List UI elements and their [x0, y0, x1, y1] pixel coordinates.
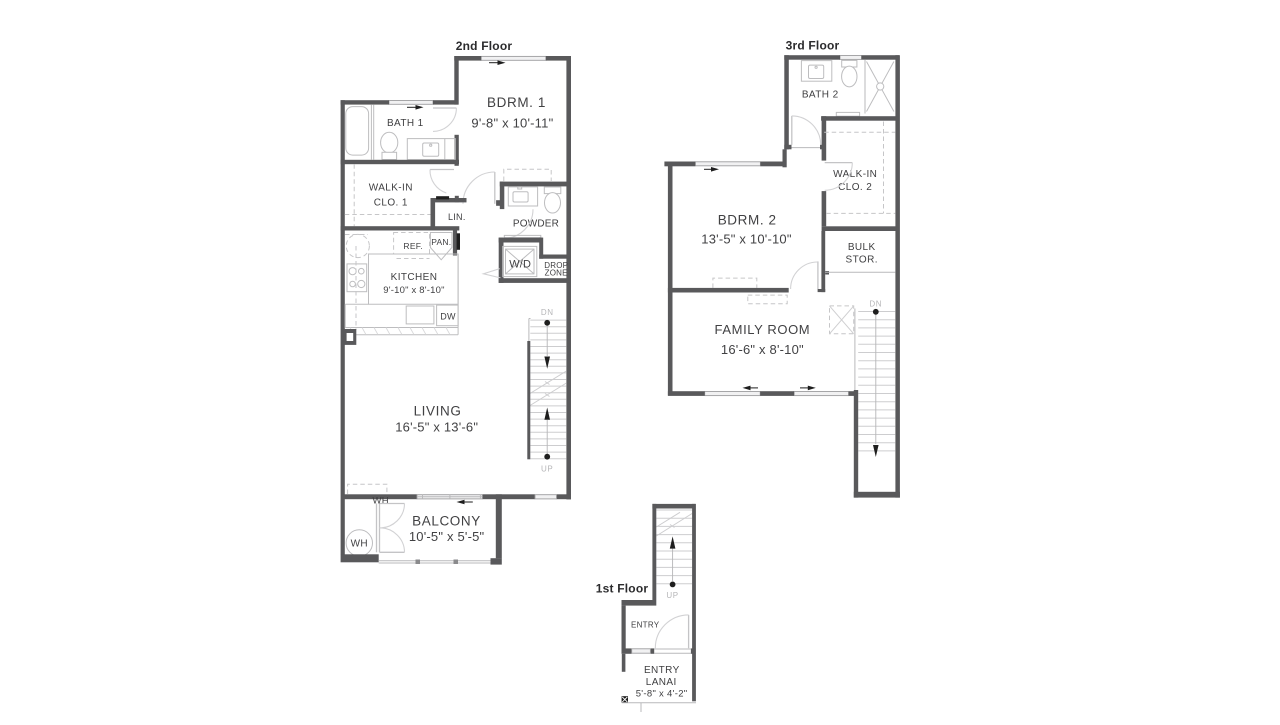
svg-text:DN: DN [869, 300, 882, 309]
svg-text:STOR.: STOR. [846, 255, 878, 266]
svg-text:5'-8" x 4'-2": 5'-8" x 4'-2" [636, 688, 688, 699]
svg-text:DW: DW [440, 312, 456, 322]
svg-text:10'-5" x 5'-5": 10'-5" x 5'-5" [409, 529, 485, 544]
svg-text:16'-5" x 13'-6": 16'-5" x 13'-6" [395, 420, 478, 435]
svg-text:PAN.: PAN. [431, 237, 451, 247]
svg-text:W/D: W/D [509, 259, 531, 271]
svg-text:13'-5" x 10'-10": 13'-5" x 10'-10" [701, 232, 792, 247]
svg-text:DN: DN [541, 308, 554, 317]
svg-text:WALK-IN: WALK-IN [833, 169, 877, 180]
svg-text:ENTRY: ENTRY [644, 665, 680, 676]
svg-text:1st Floor: 1st Floor [596, 582, 649, 596]
svg-text:FAMILY ROOM: FAMILY ROOM [715, 322, 811, 337]
svg-text:ZONE: ZONE [545, 268, 568, 277]
svg-text:LIN.: LIN. [448, 212, 466, 222]
svg-text:BALCONY: BALCONY [412, 514, 481, 529]
svg-text:REF.: REF. [403, 241, 423, 251]
svg-text:BATH 1: BATH 1 [387, 118, 424, 129]
svg-text:WH: WH [351, 539, 368, 550]
svg-text:BDRM. 2: BDRM. 2 [718, 213, 777, 228]
svg-text:WALK-IN: WALK-IN [369, 183, 413, 194]
svg-text:UP: UP [666, 591, 678, 600]
svg-text:BATH 2: BATH 2 [802, 90, 839, 101]
svg-text:ENTRY: ENTRY [631, 621, 660, 630]
svg-text:3rd Floor: 3rd Floor [786, 39, 840, 53]
svg-text:BDRM. 1: BDRM. 1 [487, 95, 546, 110]
svg-text:9'-8" x 10'-11": 9'-8" x 10'-11" [471, 116, 553, 131]
svg-text:9'-10" x 8'-10": 9'-10" x 8'-10" [383, 285, 444, 296]
svg-text:WH: WH [372, 496, 388, 507]
svg-text:POWDER: POWDER [513, 219, 559, 230]
svg-text:LANAI: LANAI [646, 677, 677, 688]
svg-text:LIVING: LIVING [414, 404, 462, 419]
svg-text:KITCHEN: KITCHEN [391, 272, 438, 283]
svg-text:2nd Floor: 2nd Floor [456, 39, 513, 53]
svg-text:16'-6" x 8'-10": 16'-6" x 8'-10" [721, 342, 804, 357]
svg-text:CLO. 1: CLO. 1 [374, 198, 408, 209]
svg-text:UP: UP [541, 465, 553, 474]
svg-text:BULK: BULK [848, 242, 876, 253]
